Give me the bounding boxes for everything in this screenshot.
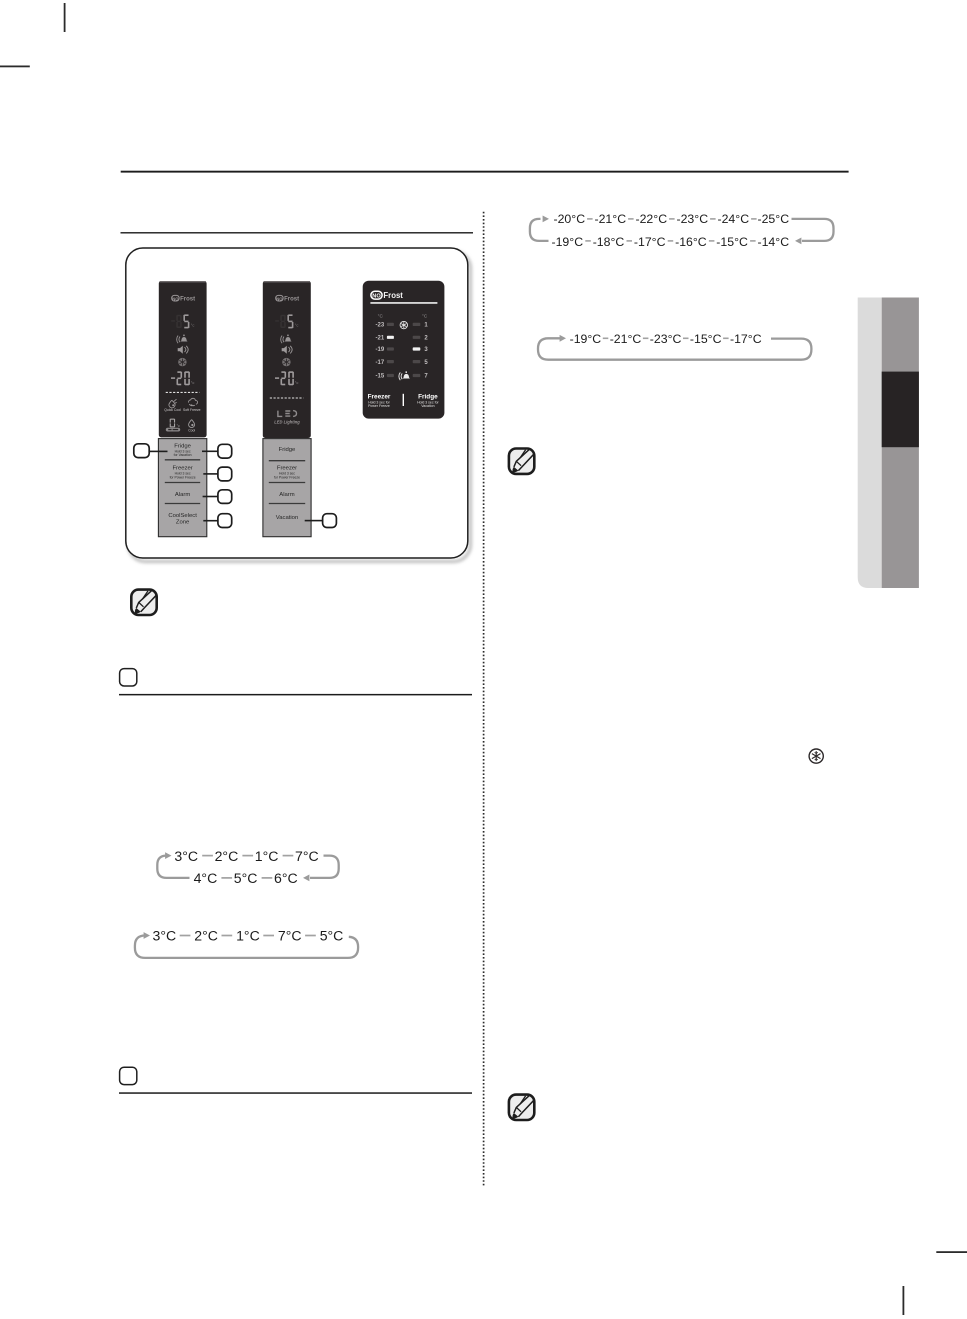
svg-text:-24°C: -24°C xyxy=(718,212,750,226)
svg-text:LED Lighting: LED Lighting xyxy=(274,419,300,424)
svg-text:6°C: 6°C xyxy=(274,870,298,886)
svg-text:Alarm: Alarm xyxy=(175,492,190,498)
svg-text:2°C: 2°C xyxy=(194,928,218,944)
svg-text:Power Freeze: Power Freeze xyxy=(368,404,390,408)
svg-text:°c: °c xyxy=(191,380,195,385)
svg-text:Frost: Frost xyxy=(180,297,195,303)
svg-text:Frost: Frost xyxy=(383,291,403,300)
svg-text:Alarm: Alarm xyxy=(279,492,294,498)
svg-text:-19: -19 xyxy=(376,347,385,353)
svg-text:for Power Freeze: for Power Freeze xyxy=(170,475,196,479)
svg-text:-16°C: -16°C xyxy=(675,235,707,249)
svg-text:°c: °c xyxy=(191,322,195,327)
svg-text:3°C: 3°C xyxy=(174,848,198,864)
svg-text:-25°C: -25°C xyxy=(758,212,790,226)
svg-text:-14°C: -14°C xyxy=(758,235,790,249)
svg-text:Freezer: Freezer xyxy=(172,465,192,471)
svg-text:-17°C: -17°C xyxy=(730,332,762,346)
svg-text:7°C: 7°C xyxy=(295,848,319,864)
svg-text:NO: NO xyxy=(172,296,179,301)
svg-text:Freezer: Freezer xyxy=(277,465,297,471)
svg-text:-15: -15 xyxy=(376,374,385,380)
svg-text:-23°C: -23°C xyxy=(677,212,709,226)
svg-text:for Power Freeze: for Power Freeze xyxy=(274,475,300,479)
svg-text:4°C: 4°C xyxy=(194,870,218,886)
svg-text:NO: NO xyxy=(372,293,381,299)
svg-text:-19°C: -19°C xyxy=(552,235,584,249)
svg-text:°C: °C xyxy=(378,313,384,318)
svg-text:-23: -23 xyxy=(376,323,385,329)
svg-text:NO: NO xyxy=(276,296,283,301)
svg-text:°C: °C xyxy=(422,313,428,318)
svg-text:Quick Cool: Quick Cool xyxy=(164,408,181,412)
svg-text:7°C: 7°C xyxy=(278,928,302,944)
svg-text:°c: °c xyxy=(177,424,180,428)
svg-text:Vacation: Vacation xyxy=(421,404,434,408)
svg-text:-19°C: -19°C xyxy=(570,332,602,346)
svg-text:-21: -21 xyxy=(376,336,385,342)
svg-text:1°C: 1°C xyxy=(236,928,260,944)
svg-text:-15°C: -15°C xyxy=(690,332,722,346)
svg-text:for Vacation: for Vacation xyxy=(174,453,192,457)
svg-text:°c: °c xyxy=(295,380,299,385)
svg-text:CoolSelect: CoolSelect xyxy=(168,513,197,519)
svg-text:Frost: Frost xyxy=(284,297,299,303)
svg-text:2°C: 2°C xyxy=(215,848,239,864)
svg-text:-22°C: -22°C xyxy=(636,212,668,226)
svg-text:Fridge: Fridge xyxy=(279,447,296,453)
svg-text:-15°C: -15°C xyxy=(716,235,748,249)
svg-text:Zone: Zone xyxy=(176,520,190,526)
svg-text:Soft Freeze: Soft Freeze xyxy=(183,408,201,412)
svg-text:-20°C: -20°C xyxy=(554,212,586,226)
svg-text:-17: -17 xyxy=(376,360,385,366)
svg-text:-21°C: -21°C xyxy=(595,212,627,226)
svg-text:5°C: 5°C xyxy=(320,928,344,944)
svg-text:°c: °c xyxy=(295,322,299,327)
svg-text:1°C: 1°C xyxy=(255,848,279,864)
svg-text:Vacation: Vacation xyxy=(276,515,299,521)
svg-text:-18°C: -18°C xyxy=(593,235,625,249)
svg-text:Cool: Cool xyxy=(188,429,195,433)
svg-text:-23°C: -23°C xyxy=(650,332,682,346)
svg-text:5°C: 5°C xyxy=(234,870,258,886)
svg-text:-21°C: -21°C xyxy=(610,332,642,346)
svg-text:3°C: 3°C xyxy=(153,928,177,944)
svg-text:-17°C: -17°C xyxy=(634,235,666,249)
